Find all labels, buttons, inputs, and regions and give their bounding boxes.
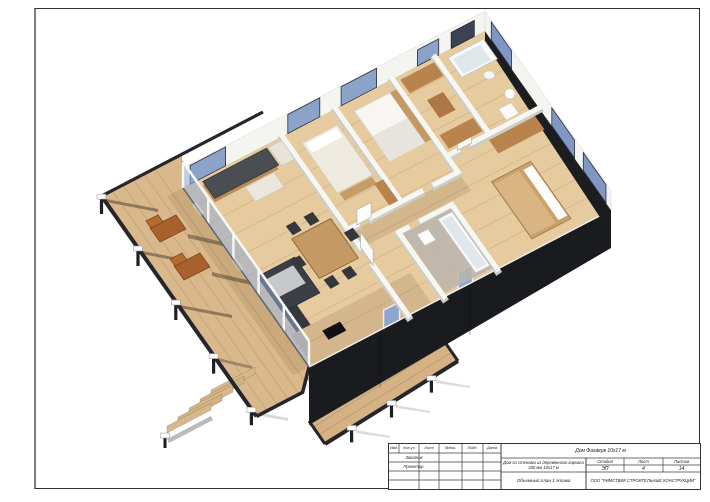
company-name: ООО "РИМСТВИК СТРОИТЕЛЬНЫЕ КОНСТРУКЦИИ" bbox=[586, 472, 700, 489]
col-header-podp: Подп. bbox=[462, 444, 483, 453]
stool bbox=[484, 71, 495, 79]
drawing-title: Объемный план 1 этажа bbox=[501, 472, 586, 489]
object-name: Дом со стенами из деревянного каркаса 20… bbox=[501, 458, 586, 472]
stage-label: Стадия bbox=[586, 458, 624, 465]
col-header-list: Лист bbox=[419, 444, 439, 453]
stage-value: ЭП bbox=[586, 465, 624, 472]
object-name-line2: 200 мм 10х17 м bbox=[528, 465, 559, 470]
sheets-value: 14 bbox=[663, 465, 700, 472]
col-header-izm: Изм. bbox=[389, 444, 399, 453]
col-header-data: Дата bbox=[483, 444, 501, 453]
washbasin bbox=[505, 89, 515, 99]
project-name: Дом Фахверк 10х17 м bbox=[501, 444, 700, 458]
role-proektir: Проектир. bbox=[389, 462, 439, 471]
drawing-sheet: Изм. Кол.уч Лист №док. Подп. Дата Заказч… bbox=[0, 0, 710, 502]
col-header-ndok: №док. bbox=[439, 444, 462, 453]
floor-plan-3d-view bbox=[0, 0, 710, 502]
col-header-koluch: Кол.уч bbox=[399, 444, 419, 453]
sheets-label: Листов bbox=[663, 458, 700, 465]
sheet-value: 4 bbox=[624, 465, 663, 472]
sheet-label: Лист bbox=[624, 458, 663, 465]
title-block: Изм. Кол.уч Лист №док. Подп. Дата Заказч… bbox=[388, 443, 701, 490]
role-zakazchik: Заказчик bbox=[389, 453, 439, 462]
